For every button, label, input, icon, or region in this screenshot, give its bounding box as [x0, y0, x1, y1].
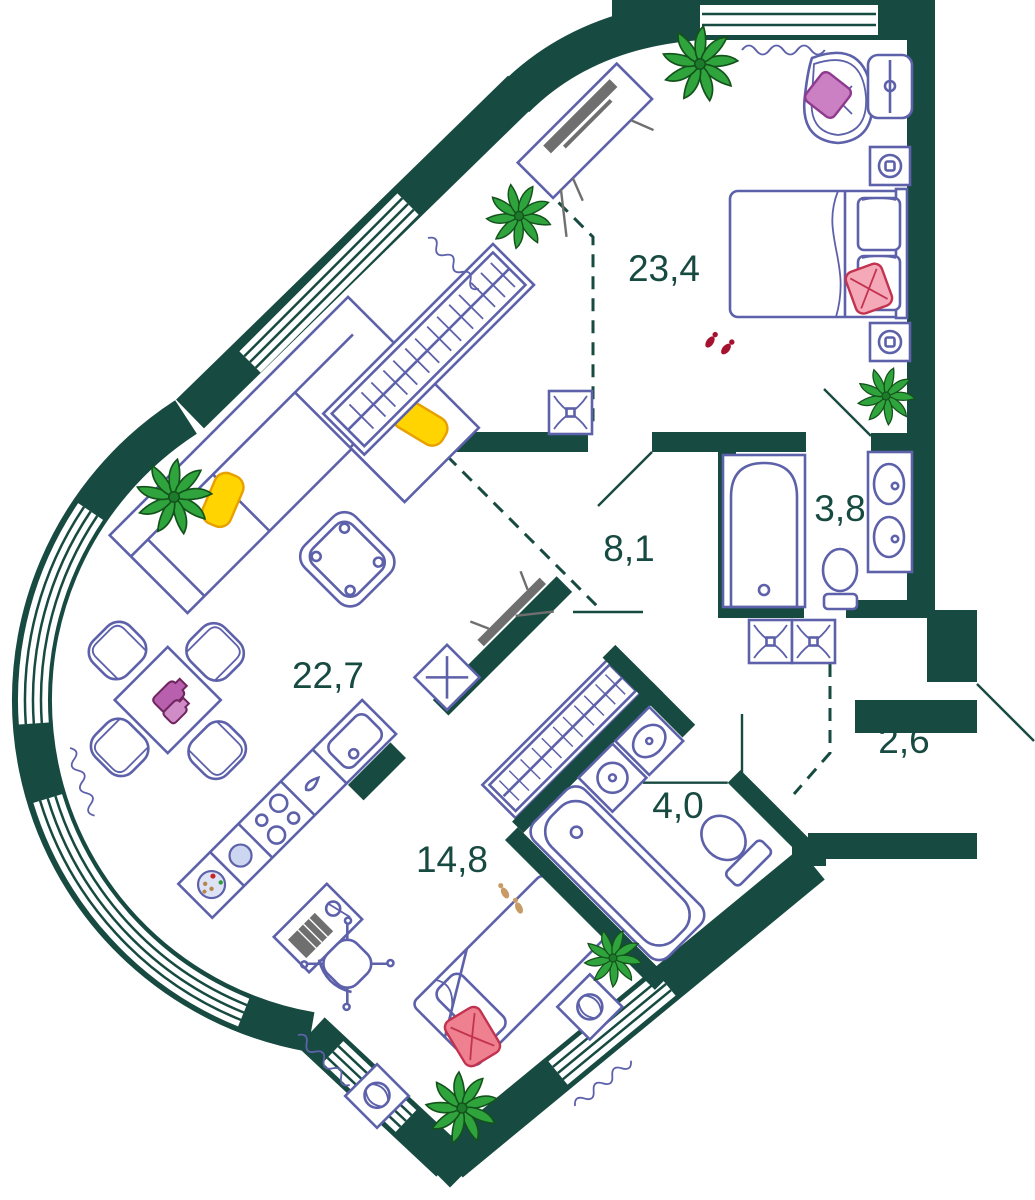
cabinet-icon — [868, 55, 912, 118]
double-sink-vanity-icon — [868, 452, 912, 572]
floor-plan-page: 23,4 8,1 3,8 22,7 2,6 14,8 4,0 — [0, 0, 1035, 1200]
room-label-entry: 2,6 — [878, 720, 929, 761]
room-label-bedroom: 23,4 — [628, 248, 700, 289]
entry-door-swing-icon — [977, 684, 1034, 741]
room-label-living-kitchen: 22,7 — [292, 655, 364, 696]
room-label-bathroom-2: 4,0 — [652, 785, 703, 826]
toilet-icon — [823, 549, 857, 609]
coffee-table-icon — [294, 506, 401, 613]
double-bed-icon — [730, 189, 907, 318]
socket-icon — [870, 147, 910, 185]
window-icon — [700, 5, 878, 35]
socket-icon — [870, 323, 910, 361]
bathroom-fixtures — [723, 452, 912, 609]
room-label-hallway: 8,1 — [603, 528, 654, 569]
vent-shaft-icon — [749, 620, 792, 663]
bedroom-furniture — [703, 53, 912, 361]
door-swing-icon — [598, 452, 652, 506]
slippers-icon — [703, 330, 736, 356]
plus-box-icon — [414, 645, 479, 710]
vent-shaft-icon — [549, 391, 592, 434]
dining-table-icon — [36, 568, 299, 831]
room-label-bedroom-2: 14,8 — [416, 839, 488, 880]
floor-plan: 23,4 8,1 3,8 22,7 2,6 14,8 4,0 — [0, 0, 1035, 1200]
room-label-bathroom: 3,8 — [814, 488, 865, 529]
vent-shaft-icon — [792, 620, 835, 663]
bathtub-icon — [723, 455, 805, 607]
armchair-icon — [803, 53, 873, 143]
door-swing-icon — [824, 389, 871, 436]
